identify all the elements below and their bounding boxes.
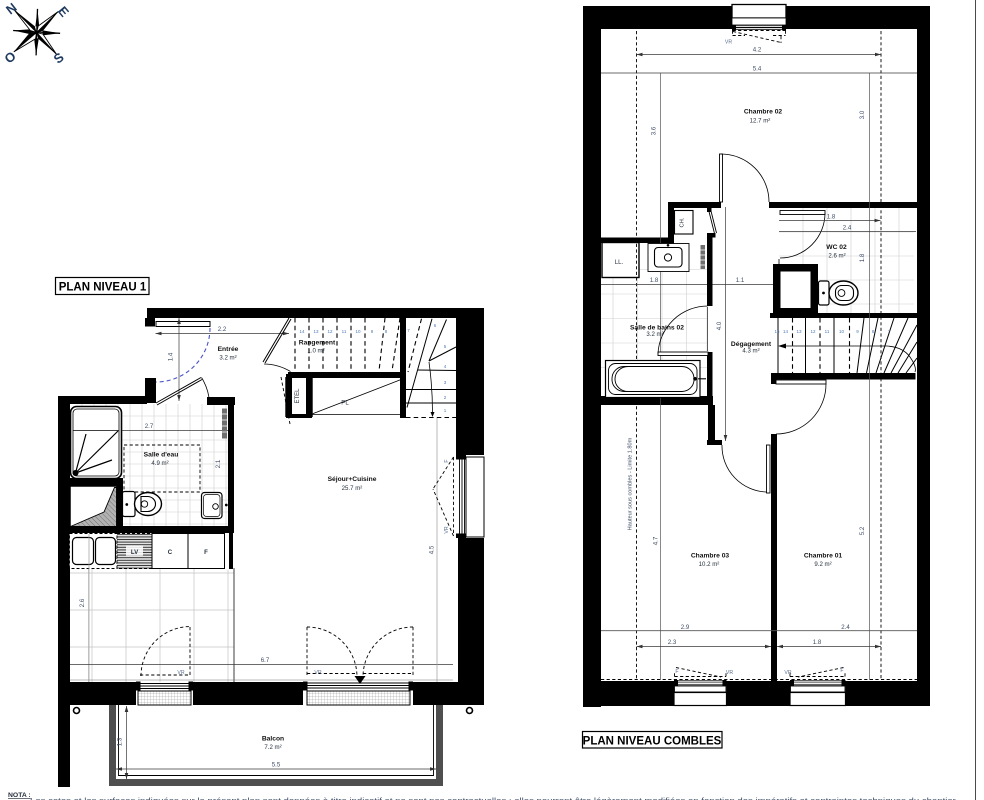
svg-text:10: 10 [355,329,361,334]
svg-text:6.7: 6.7 [261,657,270,664]
svg-text:2.4: 2.4 [843,225,852,232]
svg-text:PLAN NIVEAU 1: PLAN NIVEAU 1 [59,282,147,294]
svg-text:WC 02: WC 02 [826,244,847,251]
svg-text:13: 13 [313,329,319,334]
svg-text:4.3 m²: 4.3 m² [742,348,759,355]
svg-text:9.2 m²: 9.2 m² [814,561,831,568]
svg-text:5.5: 5.5 [272,762,281,769]
svg-text:F: F [444,459,450,462]
svg-text:4.5: 4.5 [429,545,436,554]
svg-text:11: 11 [342,329,347,334]
svg-text:12.7 m²: 12.7 m² [750,118,771,125]
svg-text:15: 15 [774,329,780,334]
svg-text:F: F [840,668,843,674]
svg-text:Hauteur sous combles - Limite: Hauteur sous combles - Limite 1.80m [628,437,634,530]
svg-text:3.2 m²: 3.2 m² [219,355,236,362]
svg-text:7.2 m²: 7.2 m² [264,744,281,751]
svg-text:Chambre 02: Chambre 02 [744,109,783,116]
svg-text:2.4: 2.4 [841,624,850,631]
svg-text:1.8: 1.8 [813,639,822,646]
svg-text:Rangement: Rangement [299,340,336,347]
svg-text:Séjour+Cuisine: Séjour+Cuisine [328,476,377,483]
svg-text:VR: VR [444,526,450,533]
svg-text:2.6: 2.6 [79,598,86,607]
svg-text:11: 11 [825,329,830,334]
svg-text:NOTA :: NOTA : [8,792,31,799]
svg-text:VR: VR [314,670,321,676]
svg-text:12: 12 [810,329,816,334]
svg-text:VR: VR [725,40,732,46]
svg-text:1.4: 1.4 [168,352,175,361]
svg-text:VR: VR [784,670,791,676]
svg-text:4.0: 4.0 [716,321,723,330]
svg-text:F: F [675,669,678,675]
svg-text:1.8: 1.8 [827,214,836,221]
svg-text:Entrée: Entrée [218,346,239,353]
svg-text:5.4: 5.4 [753,66,762,73]
svg-text:1.1: 1.1 [736,277,745,284]
svg-text:F: F [204,549,208,556]
svg-text:1.0 m²: 1.0 m² [307,348,324,355]
svg-text:Chambre 01: Chambre 01 [804,553,843,560]
svg-text:5.2: 5.2 [859,526,866,535]
svg-text:Salle d'eau: Salle d'eau [144,452,179,459]
svg-text:Chambre 03: Chambre 03 [691,553,730,560]
svg-text:PLAN NIVEAU COMBLES: PLAN NIVEAU COMBLES [583,736,722,748]
svg-text:LV: LV [131,549,139,556]
svg-text:4.7: 4.7 [653,536,660,545]
svg-text:1.8: 1.8 [650,277,659,284]
svg-text:2.9: 2.9 [681,624,690,631]
svg-text:13: 13 [796,329,802,334]
svg-text:Les cotes et les surfaces indi: Les cotes et les surfaces indiquées sur … [30,796,958,800]
svg-text:ETEL: ETEL [295,388,301,404]
svg-text:12: 12 [327,329,333,334]
svg-text:25.7 m²: 25.7 m² [342,485,363,492]
svg-text:Balcon: Balcon [262,736,284,743]
svg-text:2.7: 2.7 [145,423,154,430]
svg-text:1.3: 1.3 [117,737,124,746]
svg-text:LL.: LL. [615,259,624,266]
svg-text:3.2 m²: 3.2 m² [646,331,663,338]
svg-text:3.6: 3.6 [651,126,658,135]
svg-text:14: 14 [299,329,305,334]
svg-text:2.2: 2.2 [218,326,227,333]
svg-text:14: 14 [783,329,789,334]
svg-text:CH.: CH. [680,217,686,227]
svg-text:VR: VR [726,670,733,676]
svg-text:2.6 m²: 2.6 m² [828,253,845,260]
svg-text:VR: VR [177,670,184,676]
svg-text:4.2: 4.2 [753,47,762,54]
svg-text:2.1: 2.1 [215,459,222,468]
svg-text:10.2 m²: 10.2 m² [699,561,720,568]
svg-text:1.8: 1.8 [859,253,866,262]
svg-text:10: 10 [839,329,845,334]
svg-text:C: C [168,549,173,556]
svg-text:4.9 m²: 4.9 m² [151,460,168,467]
svg-text:2.3: 2.3 [668,639,677,646]
svg-text:PL: PL [341,400,349,407]
svg-text:3.0: 3.0 [859,110,866,119]
